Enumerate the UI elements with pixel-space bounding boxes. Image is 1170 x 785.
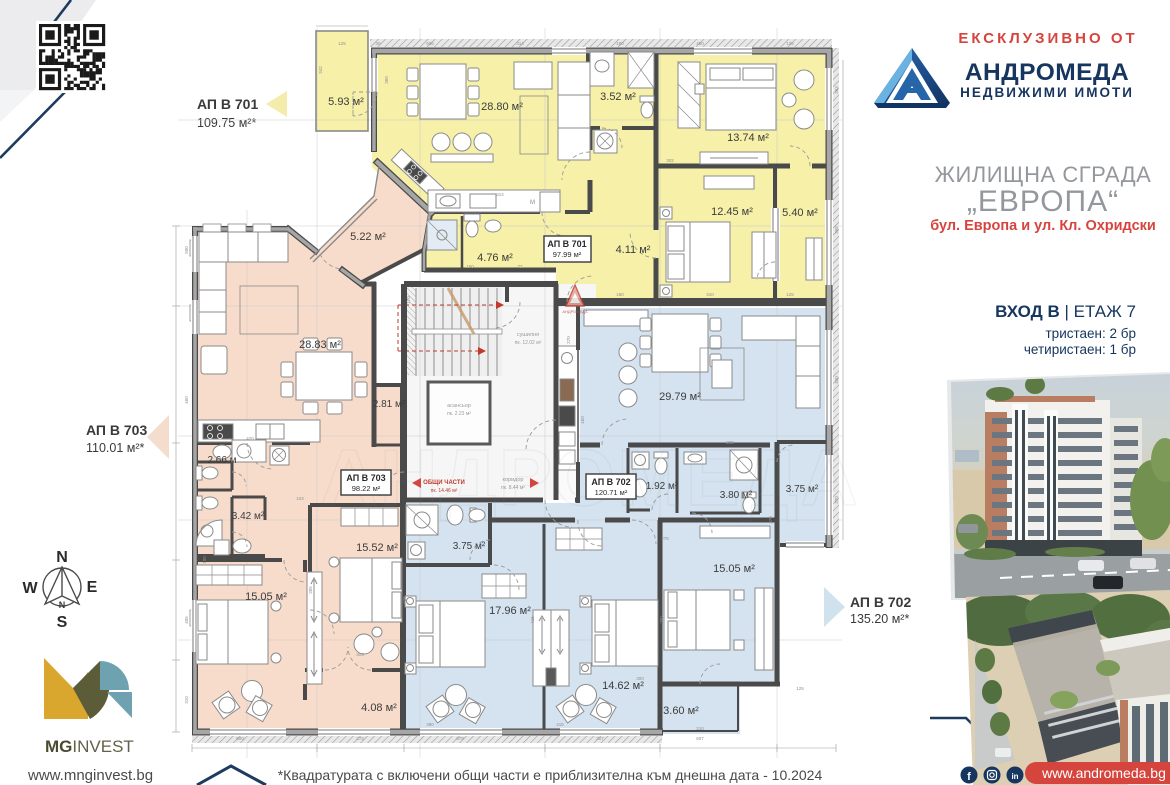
svg-text:3.42 м²: 3.42 м² <box>232 511 265 522</box>
svg-text:3.52 м²: 3.52 м² <box>600 91 636 103</box>
svg-text:109.75 м²*: 109.75 м²* <box>197 116 256 130</box>
svg-text:2.66 м: 2.66 м <box>207 455 236 466</box>
svg-text:380: 380 <box>659 616 664 624</box>
svg-text:380: 380 <box>426 722 434 727</box>
svg-text:АП В 701: АП В 701 <box>197 96 258 112</box>
svg-text:98.22 м²: 98.22 м² <box>352 484 381 493</box>
svg-text:M: M <box>530 200 535 206</box>
svg-text:500: 500 <box>184 246 189 254</box>
svg-text:272: 272 <box>356 736 364 741</box>
svg-text:103: 103 <box>296 496 304 501</box>
svg-text:E: E <box>87 579 98 596</box>
svg-text:305: 305 <box>356 652 364 657</box>
svg-text:160: 160 <box>466 264 474 269</box>
svg-text:сушилня: сушилня <box>517 332 539 338</box>
svg-text:300: 300 <box>636 676 644 681</box>
svg-text:1.92 м²: 1.92 м² <box>646 481 679 492</box>
svg-text:342: 342 <box>318 66 323 74</box>
svg-text:180: 180 <box>616 292 624 297</box>
svg-text:15.05 м²: 15.05 м² <box>713 563 755 575</box>
svg-text:2.81 м²: 2.81 м² <box>373 399 406 410</box>
svg-text:310: 310 <box>706 292 714 297</box>
svg-text:170: 170 <box>406 296 411 304</box>
svg-text:АП В 702: АП В 702 <box>591 477 630 487</box>
svg-text:асансьор: асансьор <box>447 403 471 409</box>
svg-text:385: 385 <box>308 586 313 594</box>
svg-text:72: 72 <box>517 264 523 269</box>
svg-text:3.60 м²: 3.60 м² <box>663 705 699 717</box>
svg-text:5.93 м²: 5.93 м² <box>328 96 364 108</box>
svg-text:АП В 702: АП В 702 <box>850 594 911 610</box>
svg-text:314: 314 <box>516 41 524 46</box>
svg-text:www.mnginvest.bg: www.mnginvest.bg <box>27 767 153 784</box>
svg-text:ЖИЛИЩНА СГРАДА: ЖИЛИЩНА СГРАДА <box>935 162 1152 187</box>
svg-text:бул. Европа и ул. Кл. Охридски: бул. Европа и ул. Кл. Охридски <box>930 218 1156 234</box>
svg-text:125: 125 <box>786 292 794 297</box>
svg-text:пк. 2.23 м²: пк. 2.23 м² <box>447 411 471 417</box>
svg-text:180: 180 <box>616 41 624 46</box>
svg-text:368: 368 <box>834 226 839 234</box>
svg-text:3.75 м²: 3.75 м² <box>453 541 486 552</box>
svg-text:30: 30 <box>375 41 381 46</box>
svg-text:275: 275 <box>661 536 669 541</box>
svg-text:370: 370 <box>768 516 773 524</box>
svg-text:14.62 м²: 14.62 м² <box>602 680 644 692</box>
svg-text:360: 360 <box>384 76 389 84</box>
svg-text:N: N <box>59 600 66 610</box>
svg-text:314: 314 <box>496 192 504 197</box>
svg-text:АНДРОМЕДА: АНДРОМЕДА <box>965 59 1129 86</box>
svg-text:АП В 701: АП В 701 <box>547 239 586 249</box>
svg-text:415: 415 <box>556 722 564 727</box>
svg-text:302: 302 <box>666 158 674 163</box>
svg-text:450: 450 <box>696 41 704 46</box>
svg-text:АНДРОМЕДА: АНДРОМЕДА <box>562 309 588 314</box>
svg-text:425: 425 <box>402 596 407 604</box>
svg-text:405: 405 <box>184 616 189 624</box>
svg-text:3.75 м²: 3.75 м² <box>786 484 819 495</box>
svg-text:ВХОД В | ЕТАЖ 7: ВХОД В | ЕТАЖ 7 <box>995 302 1136 321</box>
svg-text:12.45 м²: 12.45 м² <box>711 206 753 218</box>
svg-text:270: 270 <box>566 336 571 344</box>
svg-text:460: 460 <box>184 396 189 404</box>
svg-text:190: 190 <box>202 556 207 564</box>
svg-text:N: N <box>56 549 68 566</box>
svg-text:www.andromeda.bg: www.andromeda.bg <box>1041 765 1166 781</box>
svg-text:28.80 м²: 28.80 м² <box>481 101 523 113</box>
svg-text:4.76 м²: 4.76 м² <box>477 252 513 264</box>
svg-text:„ЕВРОПА“: „ЕВРОПА“ <box>967 185 1119 218</box>
svg-text:125: 125 <box>786 41 794 46</box>
svg-text:MGINVEST: MGINVEST <box>45 737 134 756</box>
svg-text:110.01 м²*: 110.01 м²* <box>86 441 145 455</box>
svg-text:in: in <box>1011 772 1018 781</box>
svg-text:17.96 м²: 17.96 м² <box>489 605 531 617</box>
svg-text:W: W <box>22 580 38 597</box>
svg-text:460: 460 <box>580 416 585 424</box>
svg-text:S: S <box>57 614 68 631</box>
svg-text:370: 370 <box>834 496 839 504</box>
svg-text:500: 500 <box>236 736 244 741</box>
svg-text:607: 607 <box>696 736 704 741</box>
svg-text:5.22 м²: 5.22 м² <box>350 231 386 243</box>
svg-text:НЕДВИЖИМИ ИМОТИ: НЕДВИЖИМИ ИМОТИ <box>960 85 1134 100</box>
svg-text:28.83 м²: 28.83 м² <box>299 339 341 351</box>
svg-text:606: 606 <box>426 41 434 46</box>
svg-text:420: 420 <box>246 436 254 441</box>
svg-text:тристаен: 2 бр: тристаен: 2 бр <box>1046 326 1137 341</box>
svg-text:3.80 м²: 3.80 м² <box>720 490 753 501</box>
svg-text:5.40 м²: 5.40 м² <box>782 207 818 219</box>
svg-text:307: 307 <box>596 736 604 741</box>
svg-text:15.52 м²: 15.52 м² <box>356 542 398 554</box>
svg-text:120.71 м²: 120.71 м² <box>595 488 628 497</box>
svg-text:четиристаен: 1 бр: четиристаен: 1 бр <box>1024 342 1136 357</box>
svg-text:135.20 м²*: 135.20 м²* <box>850 612 909 626</box>
svg-text:f: f <box>967 771 971 783</box>
svg-text:АП В 703: АП В 703 <box>86 422 147 438</box>
svg-text:4.11 м²: 4.11 м² <box>616 244 651 256</box>
svg-text:310: 310 <box>184 696 189 704</box>
svg-text:125: 125 <box>338 41 346 46</box>
svg-text:пк. 12.02 м²: пк. 12.02 м² <box>515 340 542 346</box>
svg-text:210: 210 <box>696 726 704 731</box>
svg-text:230: 230 <box>726 440 734 445</box>
svg-text:125: 125 <box>796 686 804 691</box>
svg-text:415: 415 <box>530 616 535 624</box>
svg-text:13.74 м²: 13.74 м² <box>727 132 769 144</box>
svg-text:*Квадратурата с включени общи: *Квадратурата с включени общи части е пр… <box>278 767 823 783</box>
svg-text:АП В 703: АП В 703 <box>346 473 385 483</box>
svg-text:29.79 м²: 29.79 м² <box>659 391 701 403</box>
svg-text:4.08 м²: 4.08 м² <box>361 702 397 714</box>
svg-text:363: 363 <box>834 86 839 94</box>
svg-text:450: 450 <box>834 376 839 384</box>
svg-text:379: 379 <box>456 736 464 741</box>
svg-text:97.99 м²: 97.99 м² <box>553 250 582 259</box>
svg-text:ЕКСКЛУЗИВНО ОТ: ЕКСКЛУЗИВНО ОТ <box>958 30 1137 47</box>
svg-text:15.05 м²: 15.05 м² <box>245 591 287 603</box>
